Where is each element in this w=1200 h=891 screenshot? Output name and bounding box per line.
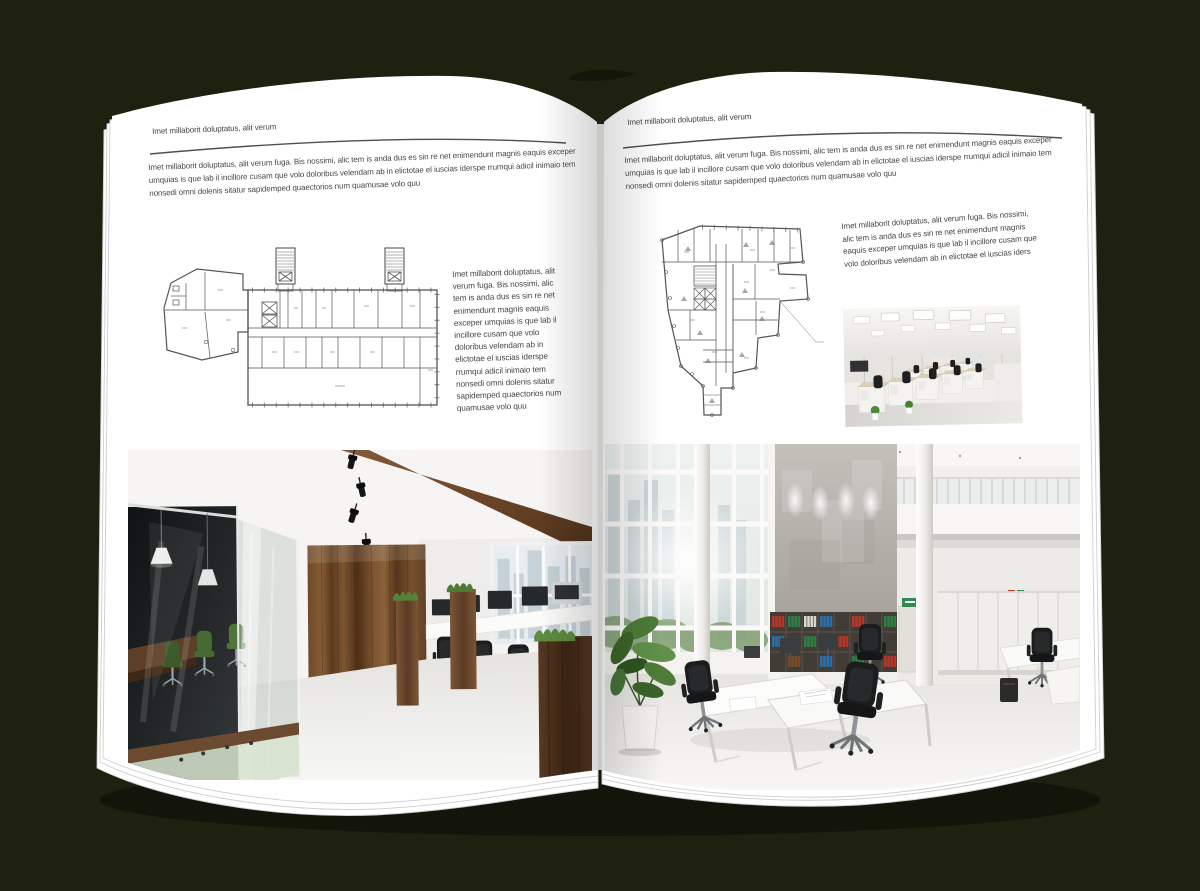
magazine-mockup-stage: Imet millaborit doluptatus, alit verum I…	[0, 0, 1200, 891]
glass-meeting-room	[123, 503, 300, 793]
photo-right-office	[593, 444, 1080, 790]
spine-top-pages	[570, 69, 636, 81]
wall-screen	[850, 360, 868, 371]
left-page-sidebar: Imet millaborit doluptatus, alit verum f…	[452, 265, 573, 415]
concrete-wall	[775, 444, 897, 614]
photo-left-office	[123, 444, 598, 792]
column	[694, 444, 710, 684]
column	[916, 444, 933, 686]
photo-small-office	[843, 305, 1022, 427]
